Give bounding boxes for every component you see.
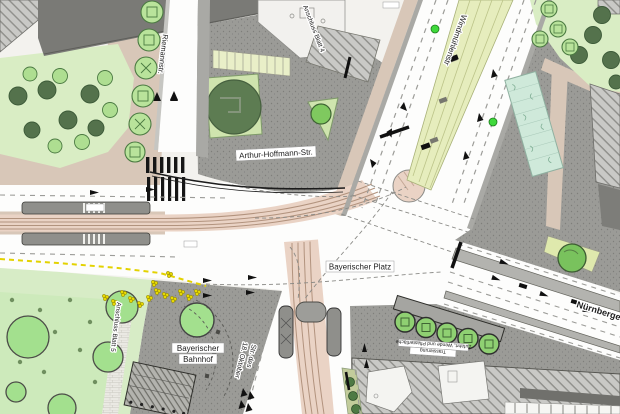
signal-dot [489,118,497,126]
svg-text:Bayerischer: Bayerischer [177,344,220,353]
dome-tree-canopy [207,80,261,134]
signal-dot [431,25,439,33]
tree [558,244,586,272]
tree [180,303,214,337]
small-label-box [184,241,197,247]
small-label-box [383,2,399,8]
place-label-bayerischer-platz: Bayerischer Platz [326,261,394,272]
svg-text:Bahnhof: Bahnhof [183,355,214,364]
svg-text:Bayerischer Platz: Bayerischer Platz [329,263,391,272]
site-plan-map[interactable]: Riemannstr. Arthur-Hoffmann-Str. Windmüh… [0,0,620,414]
small-label-box [86,204,104,211]
map-canvas: Riemannstr. Arthur-Hoffmann-Str. Windmüh… [0,0,620,414]
